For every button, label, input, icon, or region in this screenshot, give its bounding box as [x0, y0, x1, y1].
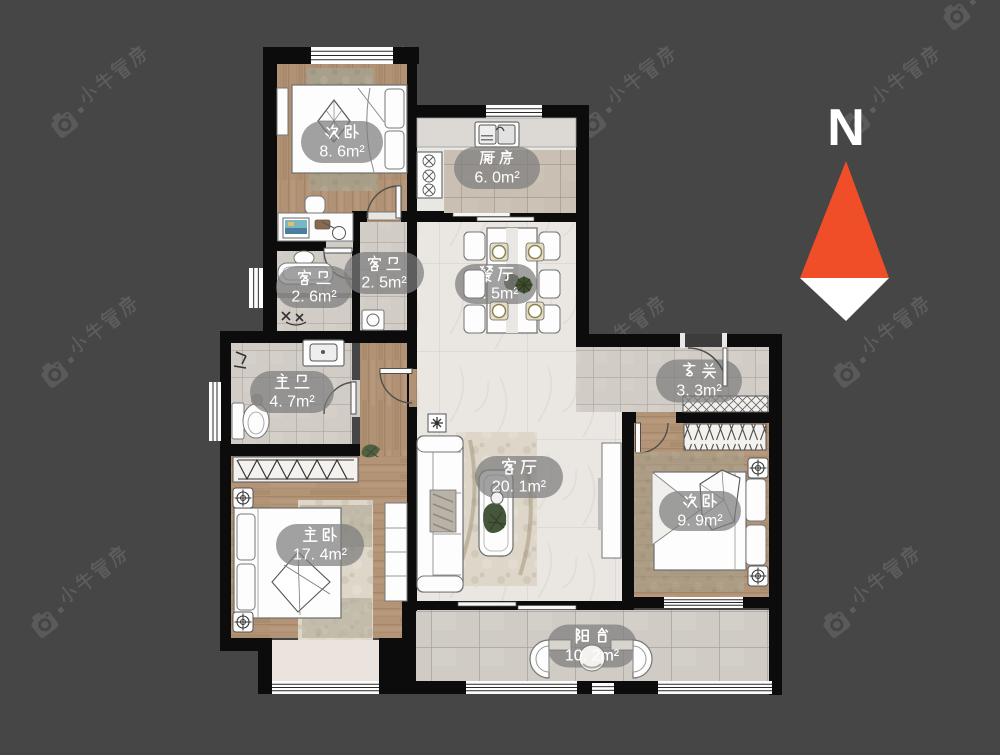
- svg-text:2. 6m²: 2. 6m²: [291, 289, 337, 306]
- svg-text:8. 6m²: 8. 6m²: [319, 144, 365, 161]
- svg-text:9. 9m²: 9. 9m²: [677, 513, 723, 530]
- svg-text:17. 4m²: 17. 4m²: [293, 547, 348, 564]
- svg-text:6. 0m²: 6. 0m²: [474, 170, 520, 187]
- svg-text:2. 5m²: 2. 5m²: [361, 275, 407, 292]
- svg-text:4. 7m²: 4. 7m²: [269, 394, 315, 411]
- svg-text:3. 3m²: 3. 3m²: [676, 383, 722, 400]
- svg-text:10. 2m²: 10. 2m²: [565, 648, 620, 665]
- svg-text:N: N: [827, 99, 865, 157]
